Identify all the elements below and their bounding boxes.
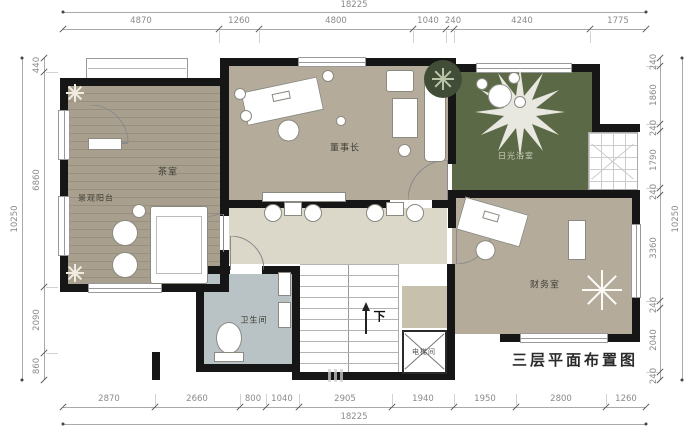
hall-table (284, 202, 302, 216)
coffee-table (392, 98, 418, 138)
stool (240, 110, 252, 122)
dim-top-segment: 1260 (228, 16, 250, 26)
dim-bottom-total: 18225 (340, 412, 367, 422)
round-table (488, 84, 512, 108)
dim-bottom-segment: 2800 (550, 394, 572, 404)
toilet (216, 322, 242, 354)
window (298, 57, 366, 67)
plant-icon (66, 84, 84, 102)
dim-ext (606, 394, 607, 405)
plant-icon (66, 264, 84, 282)
door-arc-bathroom (230, 236, 264, 270)
chair (514, 96, 526, 108)
chairman-label: 董事长 (330, 141, 360, 154)
window (58, 196, 70, 256)
bath-cabinet (278, 272, 291, 296)
dim-bottom-segment: 1940 (412, 394, 434, 404)
bath-cabinet (278, 302, 291, 328)
dim-dot (681, 57, 684, 60)
stool (234, 88, 246, 100)
side-table (398, 144, 411, 157)
bathroom-label: 卫生间 (241, 315, 268, 326)
dim-ext (454, 31, 455, 43)
wall (220, 58, 300, 66)
dim-tick (642, 25, 649, 32)
balcony-label: 景观阳台 (78, 193, 114, 204)
chair (476, 78, 488, 90)
window (88, 283, 162, 293)
dim-bottom-segment: 1950 (474, 394, 496, 404)
dim-right-segment: 240 (649, 184, 659, 200)
dim-top-segment: 4800 (325, 16, 347, 26)
dim-ext (413, 31, 414, 43)
dim-ext (46, 353, 58, 354)
dim-dot (681, 379, 684, 382)
dim-ext (46, 287, 58, 288)
watermark (328, 367, 346, 386)
dim-bottom-segment: 2905 (334, 394, 356, 404)
dim-ext (446, 31, 447, 43)
window (520, 333, 608, 343)
dim-right-segment: 240 (649, 120, 659, 136)
wall (196, 364, 300, 372)
dim-line (44, 58, 45, 380)
dim-dot (62, 423, 65, 426)
chair (508, 72, 520, 84)
wall (292, 266, 300, 372)
dim-ext (46, 72, 58, 73)
dim-right-segment: 1790 (649, 149, 659, 171)
dim-line (660, 58, 661, 380)
elevator-lobby (402, 286, 447, 328)
wall (60, 158, 68, 198)
dim-right-segment: 3360 (649, 237, 659, 259)
dim-ext (454, 394, 455, 405)
cabinet (568, 220, 586, 260)
snowflake-decor-icon (582, 270, 622, 310)
hall-chair (406, 204, 424, 222)
armchair (386, 70, 414, 92)
dim-right-total: 10250 (671, 205, 681, 232)
window (631, 224, 641, 298)
dim-top-segment: 1775 (607, 16, 629, 26)
tv-bench (262, 192, 346, 202)
dim-dot (645, 11, 648, 14)
toilet-tank (214, 352, 244, 362)
bay-window (86, 58, 188, 80)
office-chair (275, 117, 301, 143)
wall (500, 334, 522, 342)
armchair (112, 220, 138, 246)
dim-ext (219, 31, 220, 43)
wall (432, 200, 448, 208)
dim-top-segment: 1040 (417, 16, 439, 26)
wall (592, 124, 640, 132)
wall (60, 78, 228, 86)
dim-top-total: 18225 (340, 0, 367, 10)
wall (606, 334, 640, 342)
dim-top-segment: 4240 (511, 16, 533, 26)
hall-chair (304, 204, 322, 222)
dim-ext (299, 394, 300, 405)
dim-ext (155, 394, 156, 405)
dim-dot (21, 379, 24, 382)
parasol-icon (474, 66, 566, 158)
hall-table (386, 202, 404, 216)
dim-ext (516, 394, 517, 405)
dim-right-segment: 240 (649, 54, 659, 70)
side-table (132, 204, 146, 218)
dim-right-segment: 240 (649, 297, 659, 313)
elevator-label: 电梯间 (412, 347, 436, 357)
tea-room-label: 茶室 (158, 165, 178, 178)
plant-icon (432, 68, 454, 90)
dim-line (22, 58, 23, 380)
dim-bottom-segment: 2870 (98, 394, 120, 404)
wall (152, 352, 160, 380)
stool (322, 70, 334, 82)
dim-tick (40, 376, 47, 383)
dim-line (682, 58, 683, 380)
stool (336, 116, 346, 126)
tea-table-inner (156, 216, 202, 274)
dim-top-segment: 240 (445, 16, 461, 26)
wall (60, 284, 90, 292)
dim-dot (645, 423, 648, 426)
dim-ext (259, 31, 260, 43)
office-chair (473, 238, 498, 263)
dim-dot (62, 11, 65, 14)
plan-title: 三层平面布置图 (512, 349, 638, 370)
dim-ext (590, 31, 591, 43)
wall-shelf (88, 138, 122, 150)
dim-right-segment: 1860 (649, 84, 659, 106)
dim-ext (266, 394, 267, 405)
window (58, 110, 70, 160)
dim-right-segment: 240 (649, 368, 659, 384)
dim-left-segment: 860 (32, 358, 42, 374)
dim-ext (240, 394, 241, 405)
dim-line (63, 407, 646, 408)
wall (220, 58, 229, 216)
dim-bottom-segment: 2660 (186, 394, 208, 404)
door-arc-chairman (408, 160, 448, 200)
dim-right-segment: 2040 (649, 329, 659, 351)
dim-left-total: 10250 (10, 205, 20, 232)
bay-window-sill-line (88, 68, 186, 69)
dim-bottom-segment: 1260 (615, 394, 637, 404)
dim-left-segment: 6860 (32, 169, 42, 191)
wall (632, 190, 640, 226)
dim-bottom-segment: 800 (245, 394, 261, 404)
dim-top-segment: 4870 (130, 16, 152, 26)
dim-bottom-segment: 1040 (271, 394, 293, 404)
armchair (112, 252, 138, 278)
dim-line (63, 29, 646, 30)
stairs-direction-label: 下 (373, 308, 386, 325)
dim-tick (642, 403, 649, 410)
dim-line (63, 424, 646, 425)
stair-arrow-line (365, 310, 367, 334)
dim-ext (392, 394, 393, 405)
dim-line (63, 12, 646, 13)
finance-label: 财务室 (530, 278, 560, 291)
hall-chair (264, 204, 282, 222)
dim-left-segment: 440 (32, 57, 42, 73)
floor-plan: 下 茶室 景观阳台 董事长 日光浴室 财务室 卫生间 电梯间 三层平面布置图 1… (0, 0, 700, 444)
wall (160, 284, 228, 292)
sunroom-label: 日光浴室 (498, 151, 534, 162)
terrace-tile (588, 132, 638, 190)
dim-left-segment: 2090 (32, 309, 42, 331)
dim-dot (21, 57, 24, 60)
hall-chair (366, 204, 384, 222)
